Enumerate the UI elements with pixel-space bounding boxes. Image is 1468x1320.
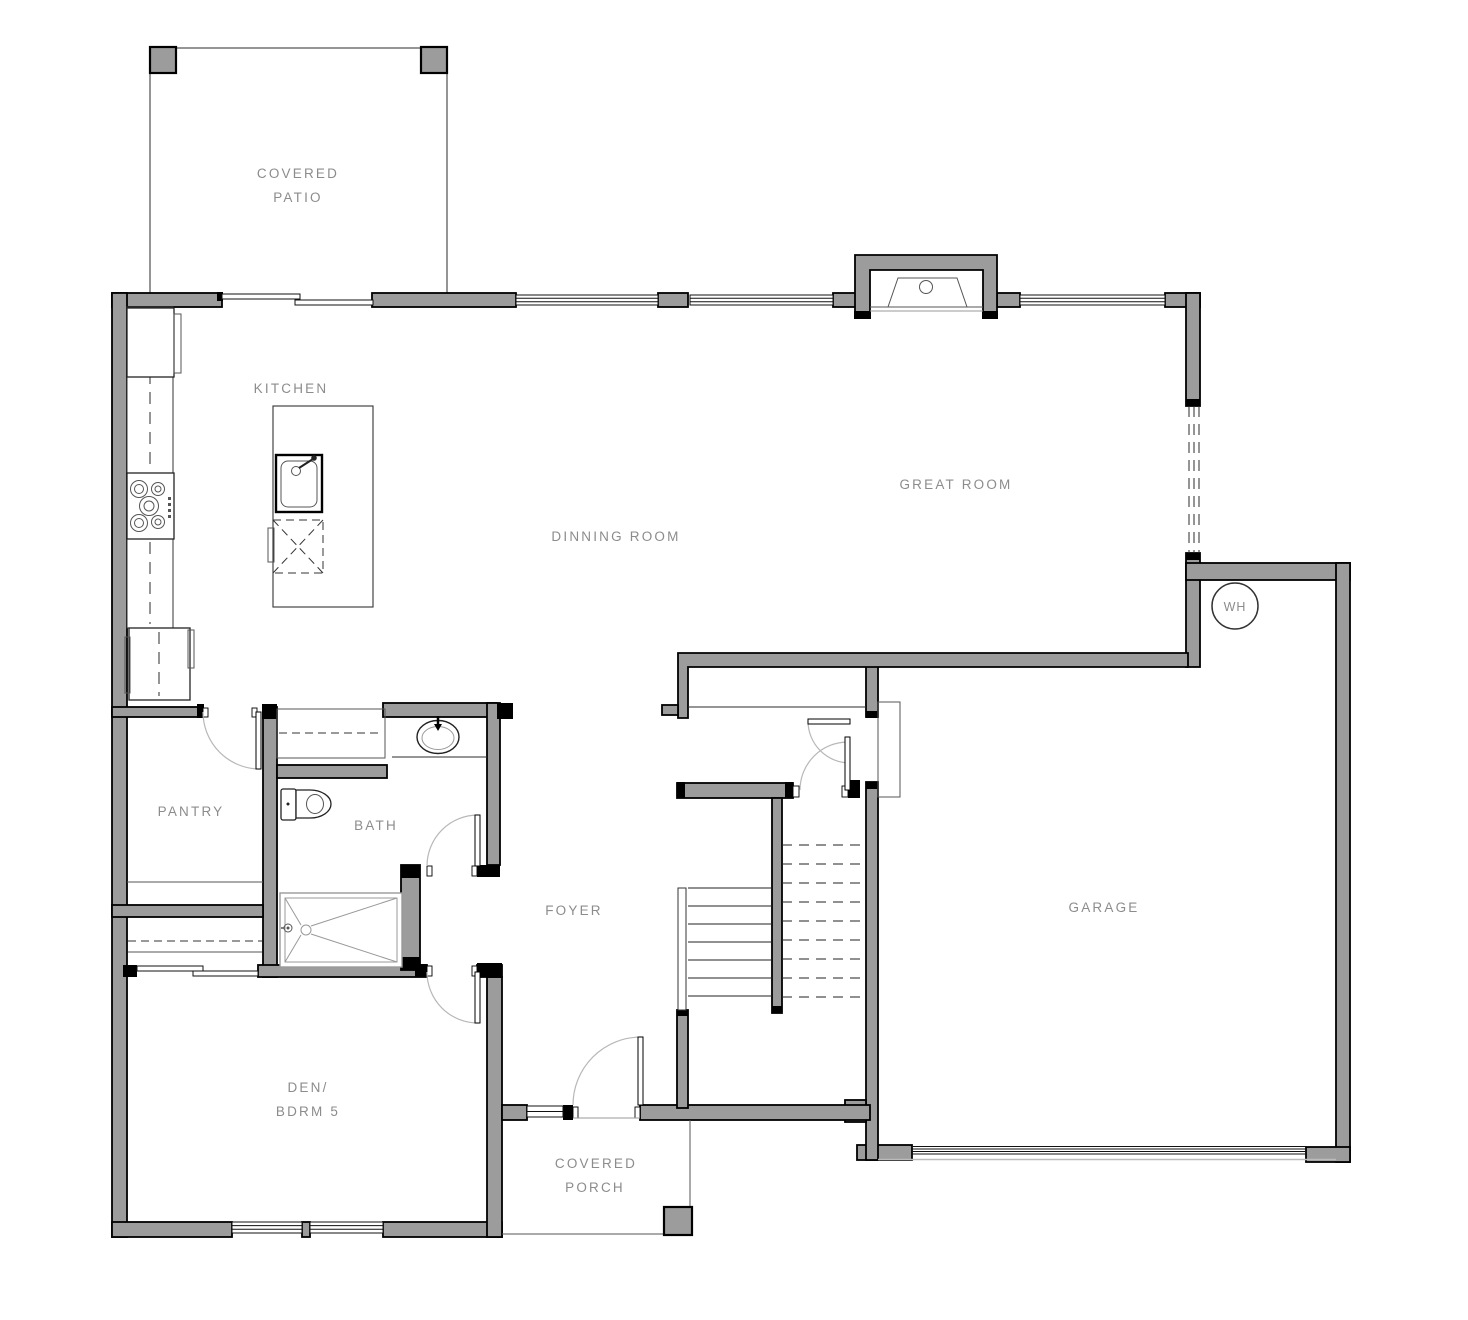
cap-stairhall-right: [785, 782, 793, 798]
cap-garageleft-lower: [866, 782, 878, 789]
garage-landing: [878, 702, 900, 797]
firebox: [888, 278, 967, 307]
jamb-bath-2: [472, 866, 477, 876]
jamb-pantry-1: [203, 708, 208, 717]
label-covered-patio-2: PATIO: [273, 190, 323, 205]
floor-plan-drawing: WH COVERED PATIO KITCHEN DINNING ROOM GR…: [0, 0, 1468, 1320]
label-dinning-room: DINNING ROOM: [551, 529, 680, 544]
bath-door: [427, 815, 480, 866]
cooktop: [127, 473, 174, 539]
label-great-room: GREAT ROOM: [899, 477, 1012, 492]
kitchen-island: [268, 406, 373, 607]
label-covered-porch-1: COVERED: [555, 1156, 637, 1171]
window-top-1: [516, 295, 658, 305]
wall-den-bottom-pier: [302, 1222, 310, 1237]
wall-top-d: [997, 293, 1020, 307]
jamb-hall-1: [793, 786, 799, 797]
cap-garageleft-upper: [866, 711, 878, 718]
wall-nook-top: [1186, 563, 1350, 580]
wall-den-bottom-b: [383, 1222, 502, 1237]
cap-vanity-topright: [497, 703, 513, 719]
wall-vanity-right: [487, 703, 500, 865]
wall-foyer-south: [640, 1105, 870, 1120]
bath-fixtures: [280, 716, 487, 967]
vanity-sink: [392, 716, 487, 757]
water-heater: WH: [1212, 583, 1258, 629]
wall-pantry-top: [112, 707, 203, 717]
wall-right-upper: [1186, 293, 1200, 406]
water-heater-label: WH: [1224, 600, 1247, 614]
patio-post-left: [150, 47, 176, 73]
stair-treads-up-dashed: [782, 845, 866, 997]
label-den-2: BDRM 5: [276, 1104, 340, 1119]
refrigerator-door: [174, 314, 181, 373]
firebox-vent: [920, 281, 933, 294]
hall-closet: [277, 709, 385, 758]
floor-plan-canvas: WH COVERED PATIO KITCHEN DINNING ROOM GR…: [0, 0, 1468, 1320]
label-pantry: PANTRY: [158, 804, 225, 819]
label-bath: BATH: [354, 818, 398, 833]
wall-top-a: [112, 293, 222, 307]
wall-top-c: [833, 293, 857, 307]
cap-rightwall-mid: [1186, 553, 1200, 560]
wall-den-porch-stub: [502, 1105, 527, 1120]
den-door: [427, 972, 480, 1023]
cap-dendoor-left: [415, 964, 427, 977]
cap-pantry-jamb: [262, 704, 277, 719]
stair-west-thin-wall: [678, 888, 686, 1010]
wall-left-exterior: [112, 293, 127, 1237]
wall-stair-divider: [772, 798, 782, 1013]
cap-frontdoor-left: [563, 1105, 573, 1120]
wall-stair-west: [677, 1010, 688, 1108]
label-covered-patio-1: COVERED: [257, 166, 339, 181]
stair-treads-down: [688, 888, 772, 996]
jamb-front-1: [573, 1107, 578, 1118]
wall-top-b: [372, 293, 516, 307]
island-sink: [276, 455, 322, 512]
cap-dendoor-right: [477, 963, 502, 977]
shower: [280, 893, 402, 967]
wall-greatroom-south: [678, 653, 1188, 718]
pantry-door: [203, 712, 261, 769]
patio-post-right: [421, 47, 447, 73]
dashed-wall-opening: [1189, 406, 1199, 553]
jamb-front-2: [635, 1107, 640, 1118]
window-den-1: [232, 1222, 302, 1233]
fireplace: [854, 255, 998, 319]
cap-stairwest-top: [677, 1010, 688, 1016]
toilet: [281, 789, 331, 820]
wall-top-pier: [658, 293, 688, 307]
cap-rightwall-upper: [1186, 399, 1200, 406]
cap-closet-left: [123, 965, 137, 977]
jamb-den-1: [427, 966, 432, 976]
label-den-1: DEN/: [287, 1080, 328, 1095]
wall-garage-right: [1336, 563, 1350, 1162]
wall-greatroom-south-foot: [662, 705, 678, 715]
jamb-bath-1: [427, 866, 432, 876]
window-top-3: [1020, 295, 1165, 305]
hall-door-b: [800, 737, 850, 790]
fireplace-surround: [855, 255, 997, 318]
patio-sliding-door: [222, 294, 373, 305]
fireplace-cap-left: [854, 311, 871, 319]
covered-porch: [502, 1120, 692, 1235]
wall-vestibule-west: [401, 865, 420, 970]
wall-den-bottom-a: [112, 1222, 232, 1237]
wall-garage-left-lower: [866, 782, 878, 1160]
window-top-2: [690, 295, 833, 305]
label-garage: GARAGE: [1069, 900, 1140, 915]
wall-oven: [125, 628, 194, 700]
garage-door: [878, 1147, 1336, 1160]
wall-pantry-bottom: [112, 905, 263, 917]
window-sidelight: [527, 1106, 563, 1117]
wall-pantry-right: [263, 707, 277, 977]
wall-den-right: [487, 977, 502, 1237]
cap-vanity-bottom: [477, 865, 500, 877]
wall-stair-hall: [677, 783, 793, 798]
kitchen-fixtures: [125, 307, 373, 700]
cap-vestibule-top: [401, 865, 420, 878]
refrigerator: [127, 308, 174, 377]
front-door: [573, 1037, 643, 1118]
wall-vanity-top: [383, 703, 497, 717]
cap-stair-divider: [772, 1006, 782, 1013]
label-covered-porch-2: PORCH: [565, 1180, 625, 1195]
label-foyer: FOYER: [545, 903, 603, 918]
cap-stairhall-left: [677, 782, 685, 798]
label-kitchen: KITCHEN: [254, 381, 329, 396]
wall-closet-bath-divider: [277, 765, 387, 778]
window-den-2: [310, 1222, 383, 1233]
porch-post: [664, 1207, 692, 1235]
closet-bypass-doors: [137, 966, 258, 976]
room-labels: COVERED PATIO KITCHEN DINNING ROOM GREAT…: [158, 166, 1140, 1195]
fireplace-cap-right: [982, 311, 998, 319]
